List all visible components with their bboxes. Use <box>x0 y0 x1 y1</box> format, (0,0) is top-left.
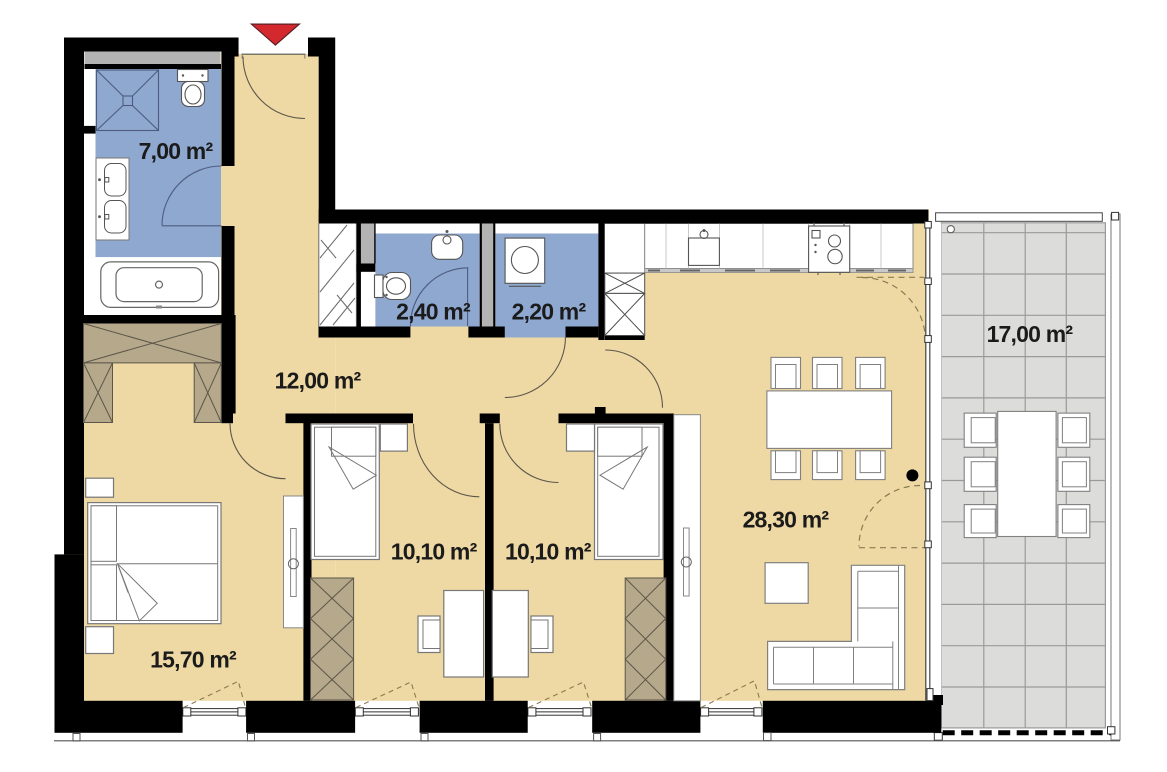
svg-text:15,70 m²: 15,70 m² <box>150 647 237 673</box>
svg-text:10,10 m²: 10,10 m² <box>505 539 592 565</box>
svg-text:10,10 m²: 10,10 m² <box>391 539 478 565</box>
svg-text:2,20 m²: 2,20 m² <box>512 299 587 325</box>
svg-text:17,00 m²: 17,00 m² <box>987 321 1074 347</box>
svg-text:12,00 m²: 12,00 m² <box>275 368 362 394</box>
svg-text:2,40 m²: 2,40 m² <box>396 299 471 325</box>
svg-text:28,30 m²: 28,30 m² <box>743 507 830 533</box>
svg-text:7,00 m²: 7,00 m² <box>139 138 214 164</box>
